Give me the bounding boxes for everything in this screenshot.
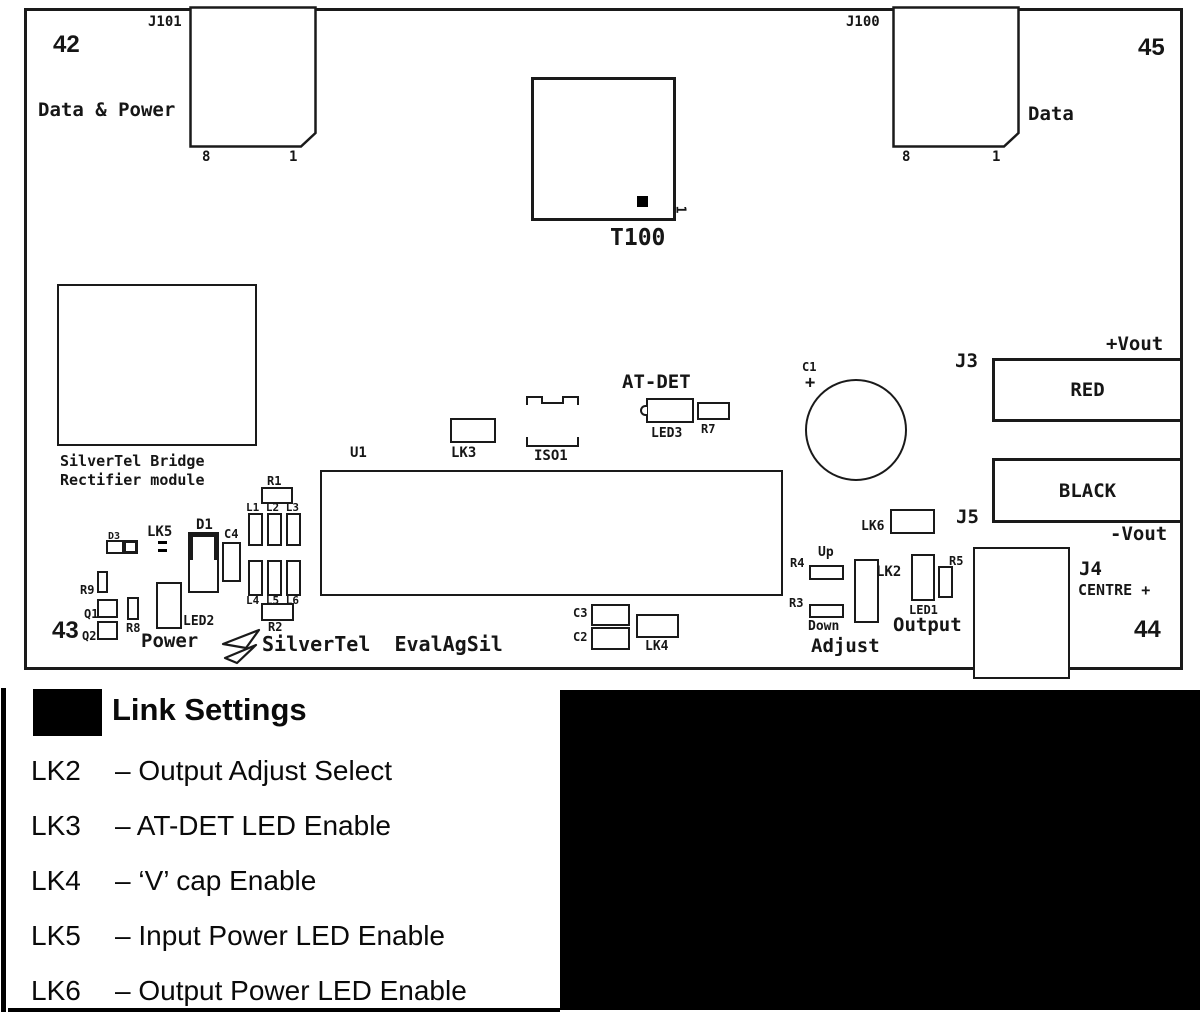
c1-ref: C1 (802, 361, 816, 373)
minus-vout-label: -Vout (1110, 525, 1167, 544)
q1-ref: Q1 (84, 608, 98, 620)
bridge-caption-line2: Rectifier module (60, 473, 205, 488)
u1-body (320, 470, 783, 596)
c1-polarity: + (805, 375, 815, 392)
j4-caption: CENTRE + (1078, 583, 1150, 598)
q2-body (97, 621, 118, 640)
up-label: Up (818, 546, 834, 559)
j100-ref: J100 (846, 15, 880, 29)
l2-body (267, 513, 282, 546)
led2-body (156, 582, 182, 629)
down-label: Down (808, 620, 839, 633)
j101-connector (189, 6, 317, 148)
lk6-ref: LK6 (861, 520, 884, 533)
j5-ref: J5 (956, 508, 979, 527)
lk3-ref: LK3 (451, 446, 476, 460)
r4-body (809, 565, 844, 580)
j5-black-terminal: BLACK (992, 458, 1183, 523)
page: J101 42 Data & Power 8 1 1 T100 J100 45 … (0, 0, 1200, 1014)
lk6-jumper (890, 509, 935, 534)
lk4-ref: LK4 (645, 640, 668, 653)
legend-item-lk6-desc: – Output Power LED Enable (115, 976, 467, 1007)
legend-item-lk5-desc: – Input Power LED Enable (115, 921, 445, 952)
r3-ref: R3 (789, 597, 803, 609)
j100-caption: Data (1028, 105, 1074, 124)
t100-ref: T100 (610, 227, 665, 250)
d3-body (106, 540, 124, 554)
d1-ref: D1 (196, 518, 213, 532)
t100-pin1-dot (637, 196, 648, 207)
lk5-pad-2 (158, 549, 167, 552)
u1-ref: U1 (350, 446, 367, 460)
bridge-rectifier-module (57, 284, 257, 446)
r5-ref: R5 (949, 555, 963, 567)
iso1-ref: ISO1 (534, 449, 568, 463)
page-callout-44: 44 (1134, 618, 1161, 642)
r5-body (938, 566, 953, 598)
adjust-label: Adjust (811, 637, 880, 656)
r3-body (809, 604, 844, 618)
d1-body (188, 532, 219, 593)
legend-item-lk5-ref: LK5 (31, 921, 81, 952)
l6-body (286, 560, 301, 596)
j100-connector (892, 6, 1020, 148)
d3-cathode (123, 540, 138, 554)
redaction-block (560, 690, 1200, 1010)
q2-ref: Q2 (82, 630, 96, 642)
t100-body (531, 77, 676, 221)
r8-body (127, 597, 139, 620)
output-label: Output (893, 616, 962, 635)
j101-pin8: 8 (202, 150, 210, 164)
page-callout-42: 42 (53, 33, 80, 57)
lk3-jumper (450, 418, 496, 443)
legend-item-lk2-ref: LK2 (31, 756, 81, 787)
lk4-jumper (636, 614, 679, 638)
r7-body (697, 402, 730, 420)
l123-refs: L1 L2 L3 (246, 502, 299, 513)
j101-pin1: 1 (289, 150, 297, 164)
q1-body (97, 599, 118, 618)
led2-ref: LED2 (183, 615, 214, 628)
c2-ref: C2 (573, 631, 587, 643)
l5-body (267, 560, 282, 596)
led3-notch (640, 405, 647, 416)
j4-connector (973, 547, 1070, 679)
page-callout-43: 43 (52, 619, 79, 643)
d3-ref: D3 (108, 532, 120, 542)
legend-left-rule (1, 688, 6, 1012)
iso1-body (520, 388, 586, 452)
l4-body (248, 560, 263, 596)
r9-body (97, 571, 108, 593)
j100-pin8: 8 (902, 150, 910, 164)
l1-body (248, 513, 263, 546)
c2-body (591, 627, 630, 650)
j3-red-terminal: RED (992, 358, 1183, 422)
lk5-pad-1 (158, 541, 167, 544)
plus-vout-label: +Vout (1106, 335, 1163, 354)
legend-item-lk6-ref: LK6 (31, 976, 81, 1007)
d1-cathode-band (188, 532, 219, 560)
j4-ref: J4 (1079, 560, 1102, 579)
j3-ref: J3 (955, 352, 978, 371)
c1-body (805, 379, 907, 481)
silvertel-logo (220, 627, 262, 665)
r4-ref: R4 (790, 557, 804, 569)
c4-ref: C4 (224, 528, 238, 540)
c3-body (591, 604, 630, 626)
legend-bottom-rule (8, 1008, 560, 1012)
c4-body (222, 542, 241, 582)
l3-body (286, 513, 301, 546)
legend-bullet-square (33, 689, 102, 736)
bridge-caption-line1: SilverTel Bridge (60, 454, 205, 469)
legend-item-lk3-desc: – AT-DET LED Enable (115, 811, 391, 842)
j101-ref: J101 (148, 15, 182, 29)
r1-ref: R1 (267, 475, 281, 487)
legend-item-lk4-desc: – ‘V’ cap Enable (115, 866, 316, 897)
j101-caption: Data & Power (38, 101, 175, 120)
t100-pin1: 1 (673, 206, 686, 214)
led1-body (911, 554, 935, 601)
led3-ref: LED3 (651, 427, 682, 440)
r8-ref: R8 (126, 622, 140, 634)
r7-ref: R7 (701, 423, 715, 435)
legend-item-lk2-desc: – Output Adjust Select (115, 756, 392, 787)
power-label: Power (141, 632, 198, 651)
legend-item-lk4-ref: LK4 (31, 866, 81, 897)
legend-item-lk3-ref: LK3 (31, 811, 81, 842)
legend-title: Link Settings (112, 694, 307, 725)
at-det-label: AT-DET (622, 373, 691, 392)
led3-body (646, 398, 694, 423)
j100-pin1: 1 (992, 150, 1000, 164)
lk2-ref: LK2 (876, 565, 901, 579)
brand-text: SilverTel EvalAgSil (262, 634, 503, 654)
lk5-ref: LK5 (147, 525, 172, 539)
c3-ref: C3 (573, 607, 587, 619)
l456-refs: L4 L5 L6 (246, 595, 299, 606)
page-callout-45: 45 (1138, 36, 1165, 60)
r9-ref: R9 (80, 584, 94, 596)
